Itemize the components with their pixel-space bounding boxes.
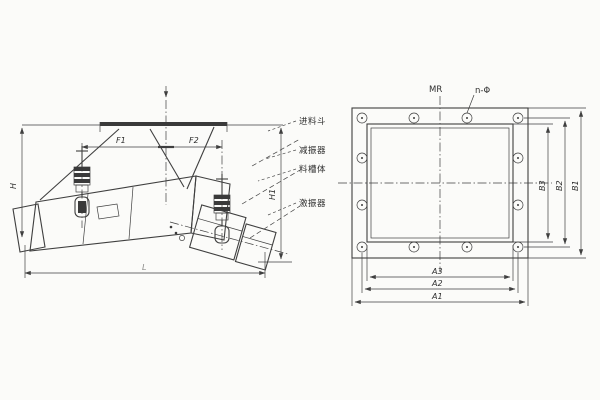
- flange-view: MR n-Φ B3: [338, 85, 586, 306]
- dim-label-f2: F2: [189, 136, 199, 145]
- hanger-hook-core: [78, 201, 86, 213]
- b-dimensions: B3 B2 B1: [513, 108, 586, 258]
- discharge-spout: [13, 204, 45, 252]
- bolt-hole-center: [517, 204, 519, 206]
- drawing-sheet: H H1 L: [0, 0, 600, 400]
- callout-label-damper: 减振器: [299, 145, 326, 156]
- dim-label-a1: A1: [431, 292, 443, 301]
- technical-drawing: H H1 L: [0, 0, 600, 400]
- bolt-dot: [175, 232, 178, 235]
- bolt-hole-center: [413, 246, 415, 248]
- trough-seam: [129, 187, 133, 239]
- note-top: MR: [429, 85, 442, 95]
- spring-coil: [74, 179, 90, 183]
- hopper-support-line: [40, 129, 119, 200]
- callout-label-trough: 料槽体: [299, 164, 326, 175]
- bolt-hole-center: [466, 117, 468, 119]
- leader-line: [268, 203, 296, 215]
- dim-label-a2: A2: [431, 279, 443, 288]
- bolt-hole-center: [517, 246, 519, 248]
- spring-coil: [74, 173, 90, 177]
- hopper-flange: [100, 122, 227, 126]
- bolt-hole-center: [361, 117, 363, 119]
- leader-line: [258, 169, 296, 181]
- dim-label-h-left: H: [9, 183, 18, 189]
- dim-label-h-right: H1: [268, 189, 277, 200]
- bolt-hole-center: [361, 246, 363, 248]
- bolt-hole-center: [517, 117, 519, 119]
- spring-coil: [214, 195, 230, 199]
- spring-coil: [214, 201, 230, 205]
- bolt-hole-center: [517, 157, 519, 159]
- bolt-hole-center: [413, 117, 415, 119]
- dim-label-b2: B2: [555, 180, 564, 191]
- dim-label-b1: B1: [571, 180, 580, 191]
- side-view: H H1 L: [9, 86, 326, 278]
- angle-reference-line: [252, 139, 300, 166]
- dim-label-b3: B3: [538, 180, 547, 191]
- dim-label-a3: A3: [431, 267, 443, 276]
- leader-line: [268, 121, 296, 131]
- callout-label-hopper: 进料斗: [299, 116, 326, 127]
- hole-count-note: n-Φ: [475, 86, 490, 96]
- dim-label-f1: F1: [116, 136, 126, 145]
- bolt-hole-center: [361, 204, 363, 206]
- pivot-hole: [179, 235, 184, 240]
- dim-label-length: L: [142, 263, 146, 272]
- bolt-hole-center: [361, 157, 363, 159]
- nameplate: [97, 204, 119, 219]
- bolt-hole-center: [466, 246, 468, 248]
- angle-reference-line: [250, 206, 300, 238]
- leader-line: [265, 150, 296, 159]
- vibrator-seam: [243, 236, 273, 245]
- hole-note-leader: [467, 95, 474, 113]
- bolt-dot: [170, 226, 173, 229]
- spring-coil: [74, 167, 90, 171]
- callout-label-exciter: 激振器: [299, 198, 326, 209]
- front-hanger: [74, 143, 90, 228]
- rear-hanger: [214, 140, 230, 250]
